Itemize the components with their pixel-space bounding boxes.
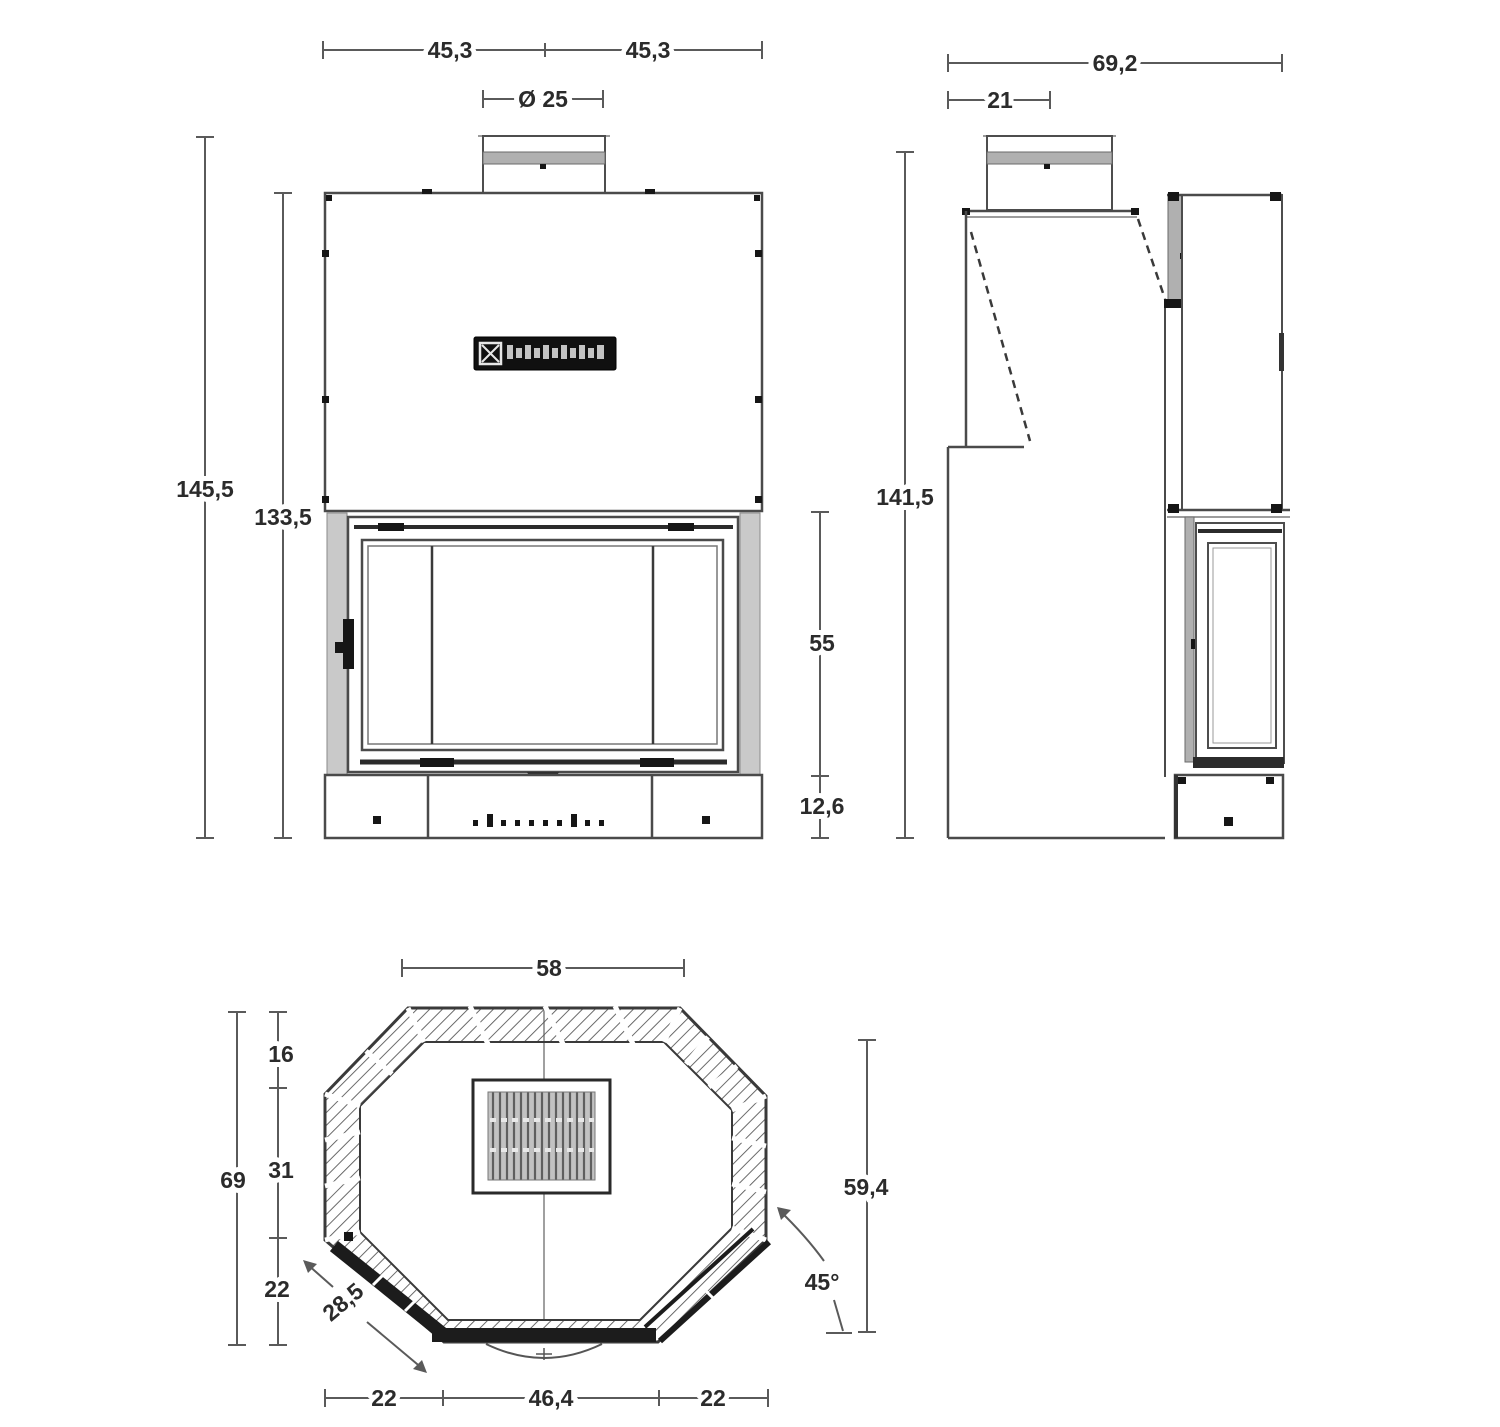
front-view: 45,3 45,3 Ø 25 bbox=[176, 37, 844, 838]
brand-logo bbox=[474, 337, 616, 370]
side-hood bbox=[948, 208, 1165, 447]
dim-plan-depth-segments: 16 31 22 bbox=[264, 1012, 294, 1345]
dim-plan-top-width-label: 58 bbox=[536, 955, 562, 981]
side-base bbox=[1175, 775, 1283, 838]
side-door-glass bbox=[1208, 543, 1276, 748]
dim-plan-top-width: 58 bbox=[402, 955, 684, 981]
dim-plan-corner-angle: 45° bbox=[777, 1207, 852, 1333]
side-door bbox=[1167, 504, 1290, 768]
dim-plan-rear-depth-label: 16 bbox=[268, 1041, 294, 1067]
dim-plan-bottom-left-label: 22 bbox=[371, 1385, 397, 1411]
front-door-glass bbox=[368, 546, 717, 744]
front-base bbox=[325, 775, 762, 838]
side-wall-panel bbox=[1164, 192, 1284, 510]
dim-side-total-height: 141,5 bbox=[876, 152, 934, 838]
dim-front-body-height-label: 133,5 bbox=[254, 504, 312, 530]
dim-front-total-height: 145,5 bbox=[176, 137, 234, 838]
dim-front-door-height-label: 55 bbox=[809, 630, 835, 656]
plan-view: 58 69 16 31 22 28,5 bbox=[220, 955, 888, 1411]
dim-front-flue-diameter: Ø 25 bbox=[483, 86, 603, 112]
dim-front-door-height: 55 bbox=[809, 512, 835, 776]
dim-side-total-depth: 69,2 bbox=[948, 50, 1282, 76]
dim-side-flue-depth-label: 21 bbox=[987, 87, 1013, 113]
dim-plan-side-depth-label: 31 bbox=[268, 1157, 294, 1183]
dim-plan-bottom-right-label: 22 bbox=[700, 1385, 726, 1411]
side-flue-collar bbox=[983, 136, 1116, 210]
dim-plan-corner-width-label: 28,5 bbox=[317, 1277, 368, 1326]
dim-side-flue-depth: 21 bbox=[948, 87, 1050, 113]
dim-plan-front-width-label: 46,4 bbox=[529, 1385, 574, 1411]
plan-flue-grille bbox=[473, 1080, 610, 1193]
dim-plan-overall-depth-label: 69 bbox=[220, 1167, 246, 1193]
dim-side-total-height-label: 141,5 bbox=[876, 484, 934, 510]
dim-front-base-height-label: 12,6 bbox=[800, 793, 845, 819]
dim-front-total-height-label: 145,5 bbox=[176, 476, 234, 502]
dim-plan-front-depth: 59,4 bbox=[844, 1040, 889, 1332]
plan-door-swing-arc bbox=[486, 1344, 602, 1360]
dim-front-width-right: 45,3 bbox=[626, 37, 671, 63]
side-view: 69,2 21 bbox=[876, 50, 1290, 838]
dim-front-width-left: 45,3 bbox=[428, 37, 473, 63]
front-flue-collar bbox=[478, 136, 610, 193]
fireplace-dimension-drawing: 45,3 45,3 Ø 25 bbox=[0, 0, 1500, 1427]
dim-plan-bottom-widths: 22 46,4 22 bbox=[325, 1385, 768, 1411]
dim-front-base-height: 12,6 bbox=[800, 776, 845, 838]
dim-plan-corner-depth-label: 22 bbox=[264, 1276, 290, 1302]
front-door bbox=[327, 513, 760, 782]
dim-plan-front-depth-label: 59,4 bbox=[844, 1174, 889, 1200]
dim-plan-corner-angle-label: 45° bbox=[805, 1269, 840, 1295]
dim-front-body-height: 133,5 bbox=[254, 193, 312, 838]
dim-side-total-depth-label: 69,2 bbox=[1093, 50, 1138, 76]
technical-drawing-page: 45,3 45,3 Ø 25 bbox=[0, 0, 1500, 1427]
dim-front-width: 45,3 45,3 bbox=[323, 37, 762, 63]
dim-front-flue-diameter-label: Ø 25 bbox=[518, 86, 568, 112]
side-firebox-body bbox=[948, 303, 1165, 838]
dim-plan-overall-depth: 69 bbox=[220, 1012, 246, 1345]
